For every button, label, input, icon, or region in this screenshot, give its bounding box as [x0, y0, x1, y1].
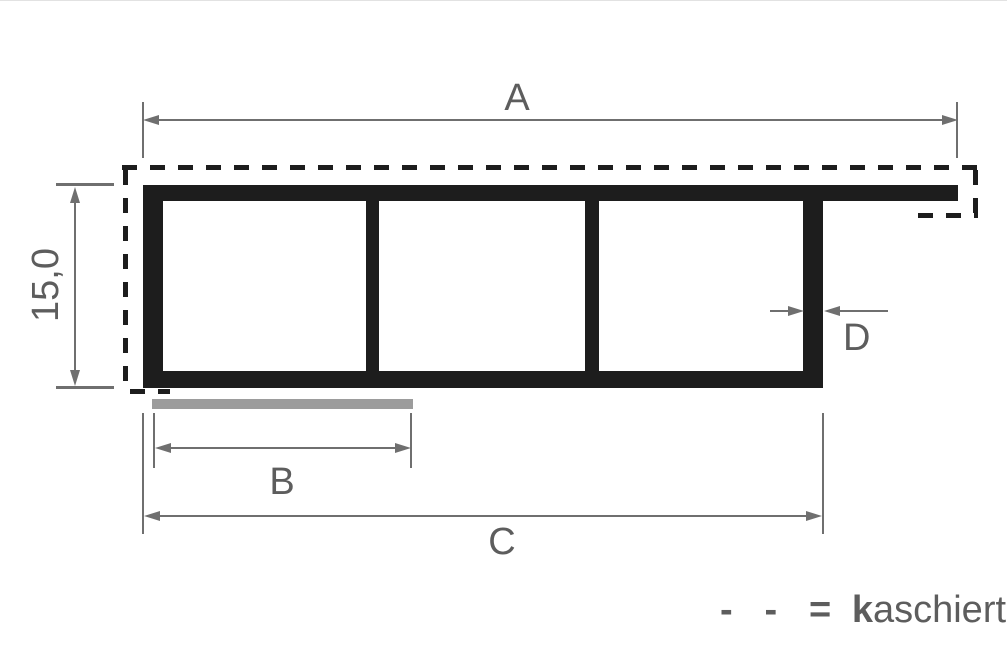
dim-b-extension-right — [410, 413, 412, 468]
dim-a-arrow-right — [942, 115, 958, 125]
dim-d-arrow-right — [788, 306, 804, 316]
dim-height-tick-top — [56, 183, 114, 186]
profile-inner-wall-1 — [366, 199, 379, 373]
dim-c-extension-right — [822, 413, 824, 534]
dim-a-line — [147, 119, 954, 121]
dim-c-arrow-right — [806, 511, 822, 521]
dim-height-tick-bottom — [56, 386, 114, 389]
dimension-a-label: A — [495, 79, 539, 117]
legend-dash-symbol: - - = — [720, 591, 842, 629]
dim-c-line — [147, 515, 819, 517]
legend: - - = k aschiert — [720, 591, 1006, 629]
kaschiert-outline-left — [123, 170, 128, 394]
dimension-c-label: C — [480, 523, 524, 561]
dim-b-extension-left — [153, 413, 155, 468]
dimension-d-label: D — [843, 319, 870, 357]
profile-bottom-flange — [143, 371, 823, 388]
dim-d-line-right — [838, 310, 888, 312]
dim-d-line-left — [770, 310, 790, 312]
laminate-strip — [152, 399, 413, 409]
dim-b-arrow-left — [155, 443, 171, 453]
legend-term-bold: k — [852, 591, 873, 629]
profile-drawing: A 15,0 B C D - - = k aschiert — [0, 0, 1007, 666]
dim-a-extension-left — [142, 102, 144, 158]
dim-height-arrow-up — [70, 187, 80, 203]
dimension-b-label: B — [260, 463, 304, 501]
dimension-height-label: 15,0 — [27, 248, 65, 322]
profile-left-wall — [143, 199, 163, 373]
profile-inner-wall-2 — [585, 199, 599, 373]
profile-right-wall — [803, 199, 823, 373]
kaschiert-outline-right — [973, 170, 978, 218]
kaschiert-outline-under-flange — [918, 213, 978, 218]
kaschiert-outline-top — [122, 165, 978, 170]
dim-height-arrow-down — [70, 370, 80, 386]
dim-a-arrow-left — [143, 115, 159, 125]
legend-term-rest: aschiert — [873, 591, 1006, 629]
dim-b-line — [158, 447, 406, 449]
dim-height-line — [74, 197, 76, 375]
dim-c-arrow-left — [144, 511, 160, 521]
kaschiert-outline-bottom-left — [130, 389, 170, 394]
profile-top-flange — [143, 185, 958, 201]
dim-b-arrow-right — [395, 443, 411, 453]
dim-a-extension-right — [956, 102, 958, 158]
